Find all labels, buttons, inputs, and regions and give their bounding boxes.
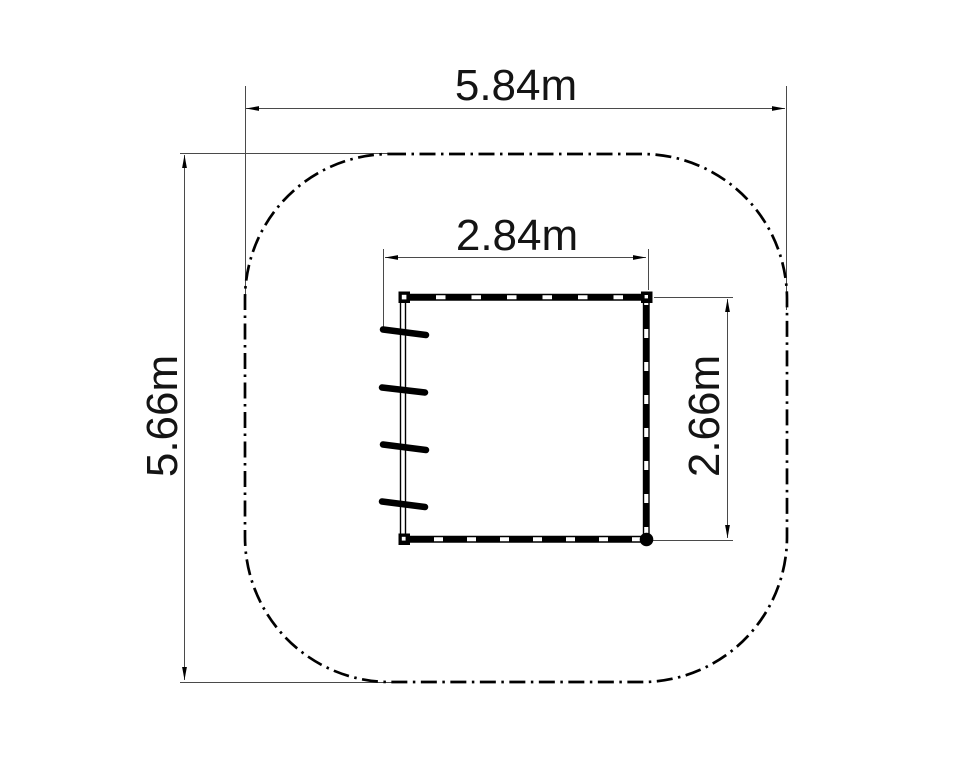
climbing-rung-3 <box>383 445 426 451</box>
dimension-label-outer-width: 5.84m <box>455 64 577 108</box>
corner-post-top-left-hole <box>402 295 407 300</box>
dimension-label-inner-width: 2.84m <box>456 214 578 258</box>
dimension-label-inner-height: 2.66m <box>683 355 727 477</box>
corner-post-bottom-left-hole <box>402 537 406 541</box>
corner-post-top-right-hole <box>645 295 648 298</box>
technical-drawing-canvas: 5.84m 5.66m 2.84m 2.66m <box>0 0 979 768</box>
climbing-rung-2 <box>382 388 425 393</box>
dimension-label-outer-height: 5.66m <box>141 355 185 477</box>
corner-post-bottom-right <box>640 533 654 547</box>
climbing-rung-4 <box>382 502 425 508</box>
equipment-outline <box>382 292 653 547</box>
climbing-rung-1 <box>383 330 426 336</box>
